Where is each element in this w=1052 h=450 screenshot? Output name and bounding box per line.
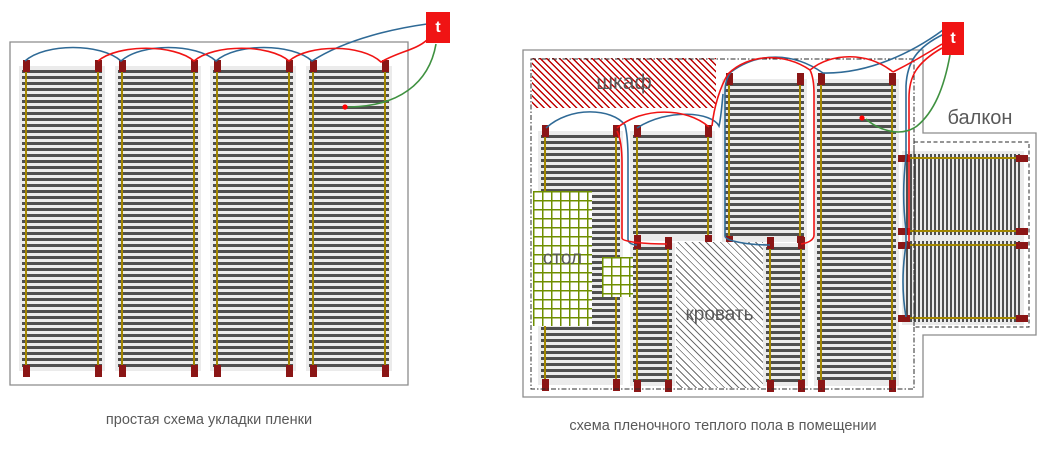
film-strip bbox=[763, 243, 808, 386]
busbar bbox=[193, 69, 195, 368]
heating-bars bbox=[118, 70, 198, 367]
terminal bbox=[898, 155, 910, 162]
terminal bbox=[665, 237, 672, 249]
terminal bbox=[889, 73, 896, 85]
wire-red bbox=[893, 44, 942, 72]
terminal bbox=[767, 380, 774, 392]
busbar bbox=[800, 246, 802, 383]
area-label: балкон bbox=[948, 107, 1013, 130]
terminal bbox=[726, 73, 733, 85]
busbar bbox=[799, 82, 801, 239]
terminal bbox=[95, 60, 102, 72]
busbar bbox=[636, 134, 638, 238]
thermostat-left: t bbox=[426, 12, 450, 43]
wire-red bbox=[98, 40, 427, 62]
film-strip bbox=[902, 151, 1024, 238]
wardrobe-hatch: шкаф bbox=[532, 58, 716, 108]
film-strip bbox=[902, 238, 1024, 325]
terminal bbox=[818, 380, 825, 392]
film-strip bbox=[306, 66, 392, 371]
heating-bars bbox=[213, 70, 293, 367]
heating-film-diagram-canvas: t t простая схема укладки пленки схема п… bbox=[0, 0, 1052, 450]
area-label: кровать bbox=[685, 304, 753, 326]
terminal bbox=[705, 125, 712, 137]
area-label: стол bbox=[543, 248, 582, 270]
heating-bars bbox=[309, 70, 389, 367]
film-strip bbox=[722, 79, 807, 242]
heating-bars bbox=[633, 135, 712, 237]
busbar bbox=[288, 69, 290, 368]
busbar bbox=[905, 230, 1021, 232]
terminal bbox=[613, 125, 620, 137]
busbar bbox=[891, 82, 893, 383]
area-label: шкаф bbox=[596, 71, 651, 95]
terminal bbox=[634, 380, 641, 392]
terminal bbox=[95, 365, 102, 377]
busbar bbox=[384, 69, 386, 368]
thermostat-left-label: t bbox=[435, 19, 440, 37]
table-grid bbox=[602, 257, 633, 297]
terminal bbox=[191, 60, 198, 72]
terminal bbox=[542, 125, 549, 137]
bed-hatch: кровать bbox=[676, 242, 763, 388]
wire-red bbox=[617, 112, 709, 128]
heating-bars bbox=[906, 241, 1020, 322]
busbar bbox=[820, 82, 822, 383]
busbar bbox=[25, 69, 27, 368]
terminal bbox=[119, 365, 126, 377]
terminal bbox=[310, 365, 317, 377]
terminal bbox=[310, 60, 317, 72]
heating-bars bbox=[817, 83, 896, 382]
terminal bbox=[1016, 228, 1028, 235]
busbar bbox=[97, 69, 99, 368]
terminal bbox=[898, 315, 910, 322]
table-grid: стол bbox=[533, 191, 592, 326]
terminal bbox=[119, 60, 126, 72]
terminal bbox=[1016, 315, 1028, 322]
busbar bbox=[312, 69, 314, 368]
caption-room-layout: схема пленочного теплого пола в помещени… bbox=[523, 418, 923, 434]
terminal bbox=[382, 365, 389, 377]
wire-blue bbox=[25, 24, 427, 61]
balcony-area: балкон bbox=[930, 105, 1030, 131]
film-strip bbox=[630, 243, 675, 386]
busbar bbox=[905, 317, 1021, 319]
terminal bbox=[798, 380, 805, 392]
heating-bars bbox=[906, 154, 1020, 235]
terminal bbox=[191, 365, 198, 377]
terminal bbox=[613, 379, 620, 391]
terminal bbox=[634, 125, 641, 137]
busbar bbox=[667, 246, 669, 383]
terminal bbox=[542, 379, 549, 391]
thermostat-right: t bbox=[942, 22, 964, 55]
busbar bbox=[905, 244, 1021, 246]
terminal bbox=[898, 242, 910, 249]
terminal bbox=[818, 73, 825, 85]
busbar bbox=[728, 82, 730, 239]
terminal bbox=[634, 237, 641, 249]
heating-bars bbox=[725, 83, 804, 238]
terminal bbox=[1016, 155, 1028, 162]
terminal bbox=[1016, 242, 1028, 249]
terminal bbox=[23, 365, 30, 377]
film-strip bbox=[210, 66, 296, 371]
terminal bbox=[382, 60, 389, 72]
busbar bbox=[905, 157, 1021, 159]
busbar bbox=[769, 246, 771, 383]
caption-simple-layout: простая схема укладки пленки bbox=[10, 412, 408, 428]
film-strip bbox=[814, 79, 899, 386]
terminal bbox=[214, 60, 221, 72]
busbar bbox=[121, 69, 123, 368]
busbar bbox=[636, 246, 638, 383]
terminal bbox=[797, 73, 804, 85]
heating-bars bbox=[22, 70, 102, 367]
terminal bbox=[665, 380, 672, 392]
film-strip bbox=[630, 131, 715, 241]
terminal bbox=[898, 228, 910, 235]
terminal bbox=[798, 237, 805, 249]
film-strip bbox=[115, 66, 201, 371]
terminal bbox=[214, 365, 221, 377]
terminal bbox=[286, 60, 293, 72]
terminal bbox=[889, 380, 896, 392]
busbar bbox=[216, 69, 218, 368]
film-strip bbox=[19, 66, 105, 371]
terminal bbox=[286, 365, 293, 377]
thermostat-right-label: t bbox=[950, 30, 955, 48]
terminal bbox=[23, 60, 30, 72]
terminal bbox=[767, 237, 774, 249]
busbar bbox=[707, 134, 709, 238]
